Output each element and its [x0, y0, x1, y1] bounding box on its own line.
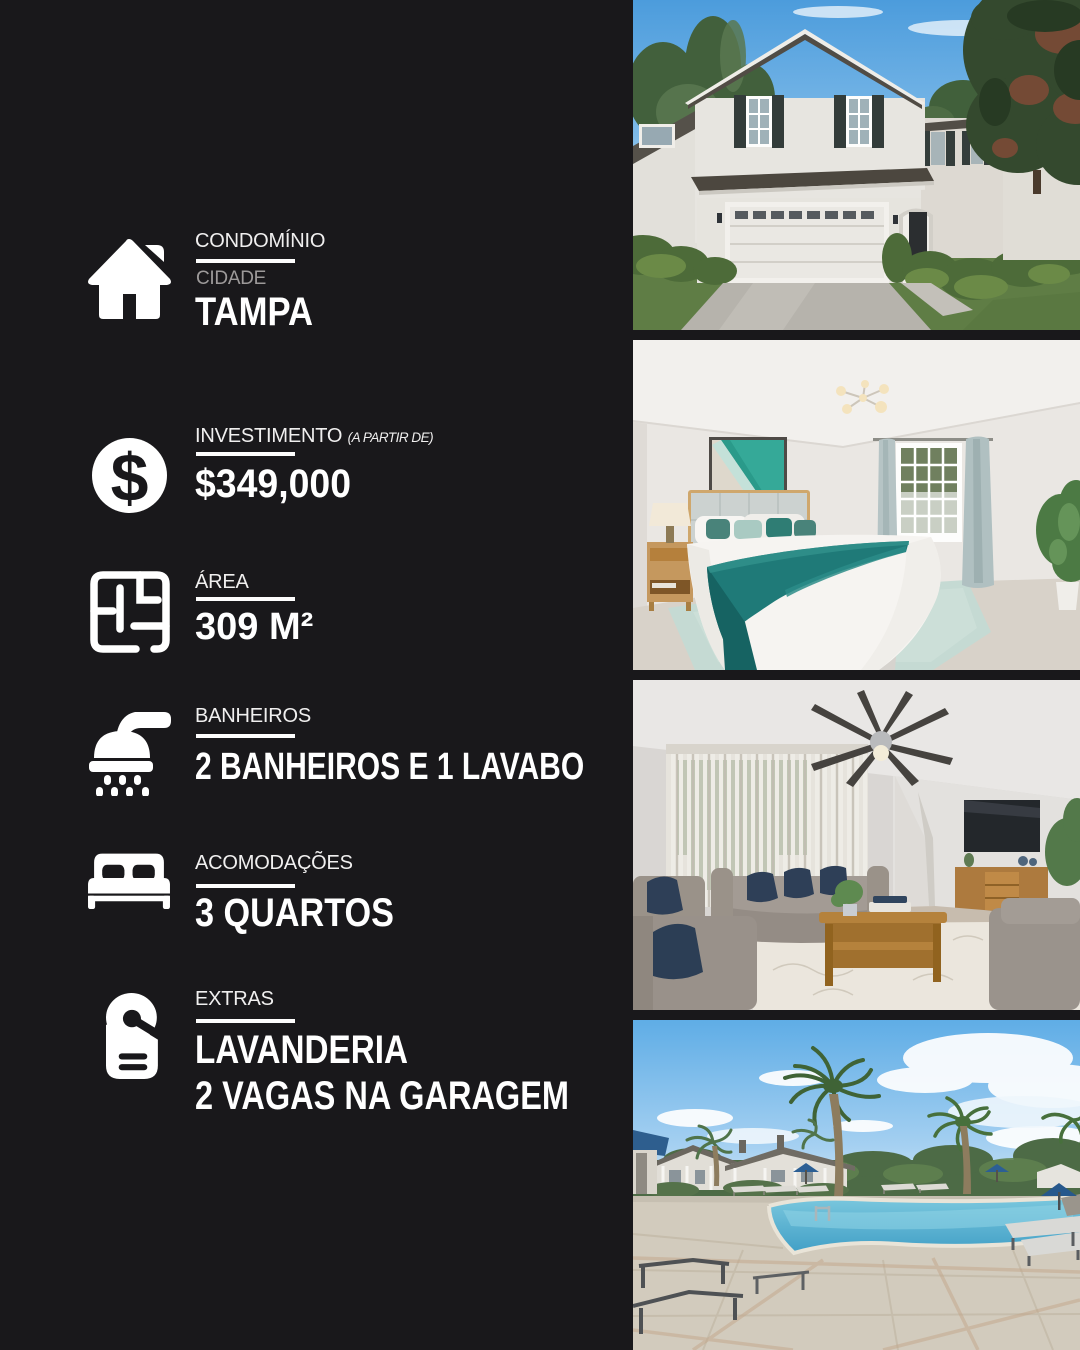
svg-text:$: $: [111, 440, 149, 513]
